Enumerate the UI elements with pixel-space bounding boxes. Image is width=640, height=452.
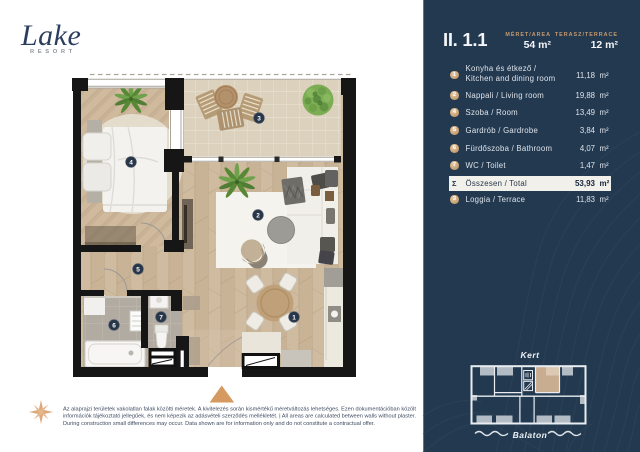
svg-text:5: 5 xyxy=(136,266,140,273)
svg-text:4: 4 xyxy=(129,159,133,166)
svg-text:7: 7 xyxy=(159,314,163,321)
svg-text:6: 6 xyxy=(112,322,116,329)
svg-text:3: 3 xyxy=(257,115,261,122)
svg-text:1: 1 xyxy=(292,314,296,321)
svg-text:2: 2 xyxy=(256,212,260,219)
